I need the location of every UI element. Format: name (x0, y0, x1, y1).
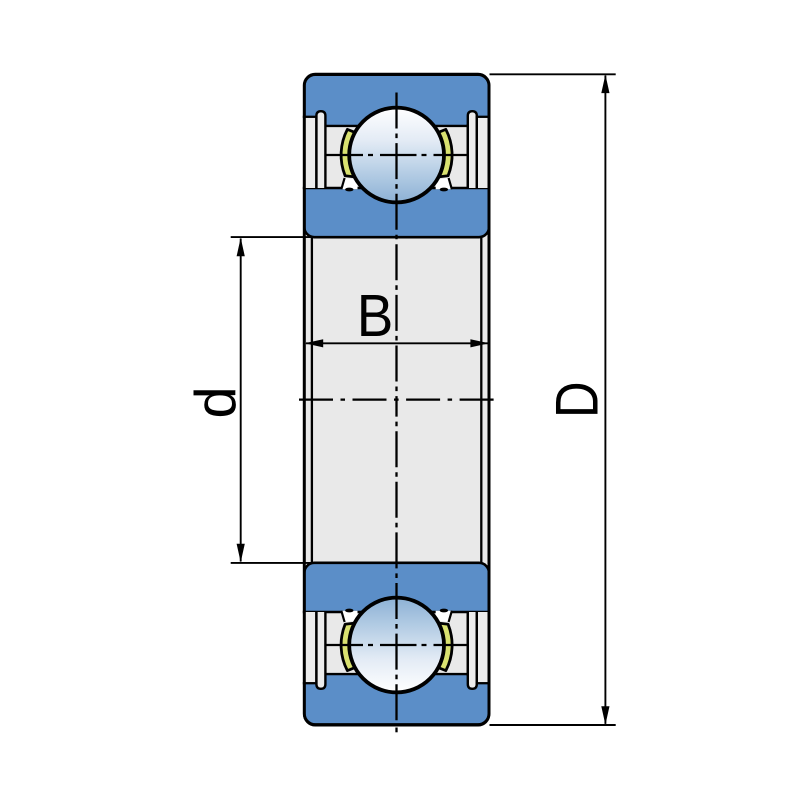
svg-text:D: D (543, 381, 610, 418)
svg-text:B: B (357, 283, 394, 350)
svg-text:d: d (184, 386, 248, 418)
